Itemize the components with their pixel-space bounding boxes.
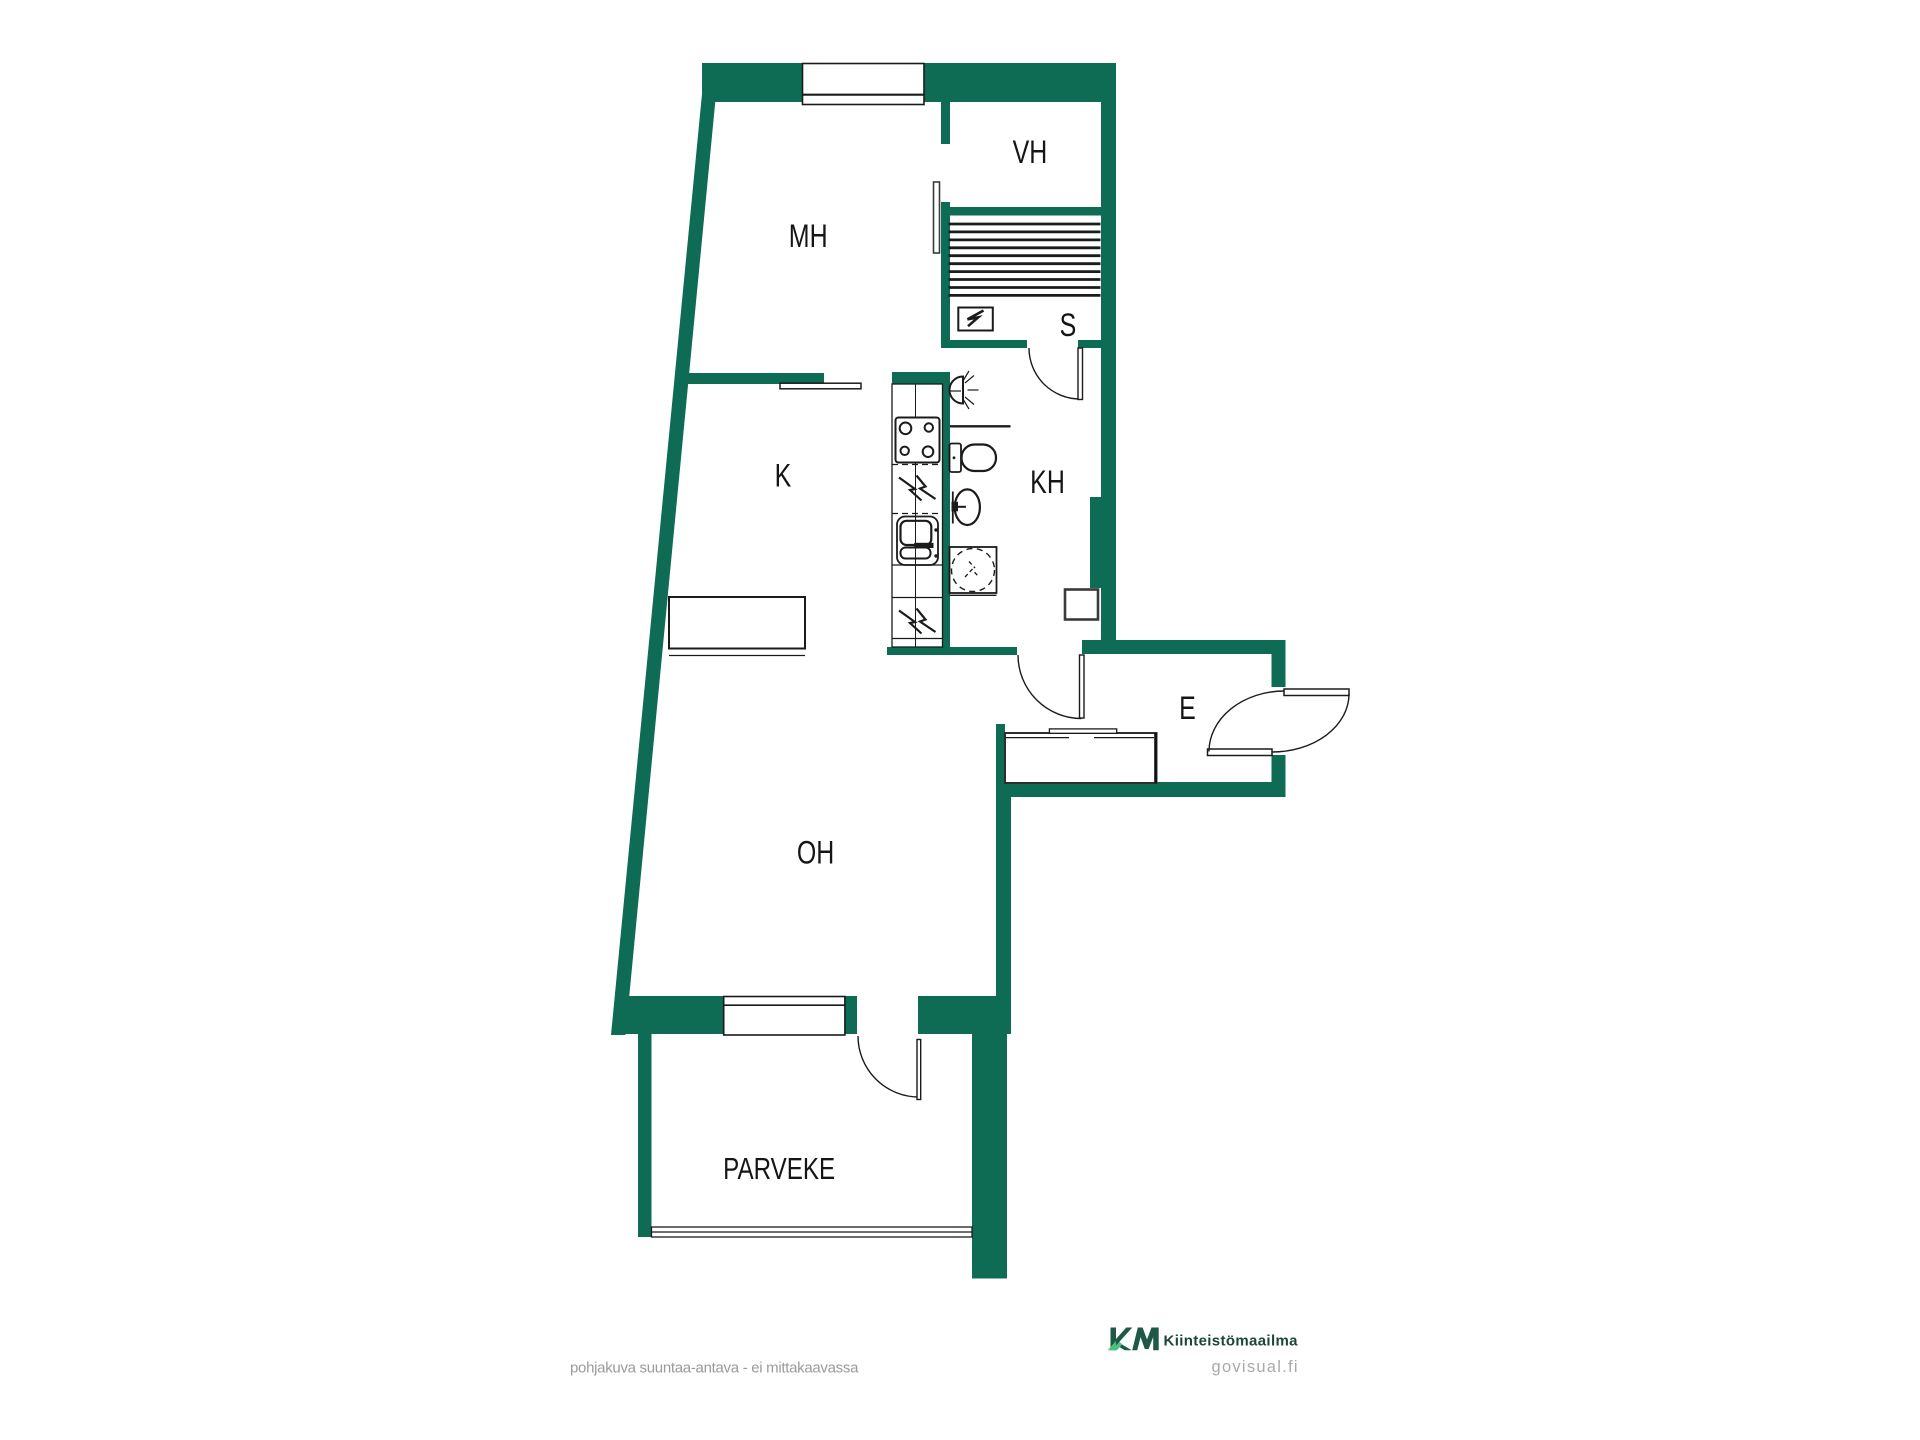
svg-text:pohjakuva suuntaa-antava - ei: pohjakuva suuntaa-antava - ei mittakaava…: [570, 1360, 859, 1377]
svg-text:govisual.fi: govisual.fi: [1212, 1358, 1298, 1376]
svg-text:MH: MH: [789, 219, 828, 255]
svg-text:PARVEKE: PARVEKE: [723, 1151, 835, 1186]
svg-text:S: S: [1060, 308, 1077, 344]
svg-text:OH: OH: [797, 836, 834, 872]
svg-text:E: E: [1179, 691, 1196, 727]
svg-text:K: K: [775, 459, 792, 495]
svg-text:Kiinteistömaailma: Kiinteistömaailma: [1164, 1333, 1299, 1350]
svg-text:KH: KH: [1030, 465, 1065, 501]
svg-text:VH: VH: [1013, 135, 1048, 171]
